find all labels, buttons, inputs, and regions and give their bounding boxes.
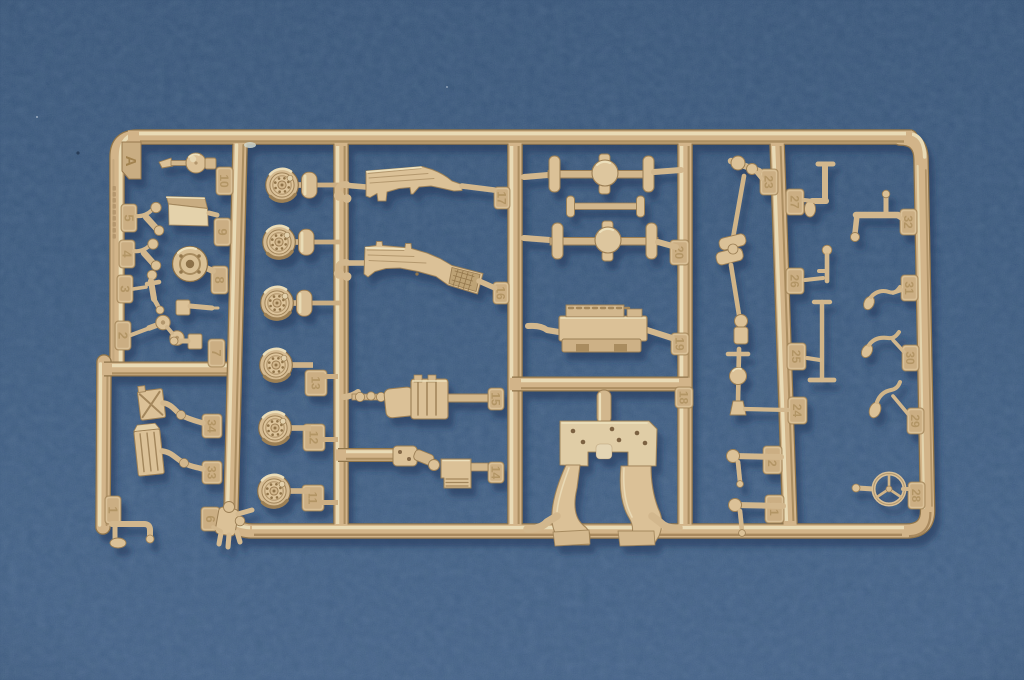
- svg-text:13: 13: [309, 376, 323, 390]
- svg-text:17: 17: [495, 191, 509, 205]
- svg-text:27: 27: [788, 195, 802, 209]
- svg-text:8: 8: [212, 276, 227, 283]
- svg-text:26: 26: [788, 274, 802, 288]
- svg-text:12: 12: [307, 431, 321, 445]
- svg-text:24: 24: [790, 404, 804, 418]
- svg-text:14: 14: [489, 466, 503, 480]
- svg-text:15: 15: [489, 392, 503, 406]
- svg-text:3: 3: [118, 285, 133, 292]
- svg-text:34: 34: [205, 419, 219, 433]
- svg-text:9: 9: [215, 228, 230, 235]
- svg-text:25: 25: [789, 350, 803, 364]
- svg-text:29: 29: [908, 414, 922, 428]
- svg-text:31: 31: [902, 281, 916, 295]
- svg-text:33: 33: [205, 466, 219, 480]
- svg-text:7: 7: [209, 349, 224, 356]
- svg-text:1: 1: [106, 506, 121, 513]
- svg-text:6: 6: [203, 515, 218, 522]
- svg-text:18: 18: [677, 391, 691, 405]
- svg-text:28: 28: [909, 489, 923, 503]
- svg-text:A: A: [122, 156, 139, 167]
- svg-text:10: 10: [217, 174, 231, 188]
- svg-text:2: 2: [116, 332, 131, 339]
- svg-text:23: 23: [762, 175, 776, 189]
